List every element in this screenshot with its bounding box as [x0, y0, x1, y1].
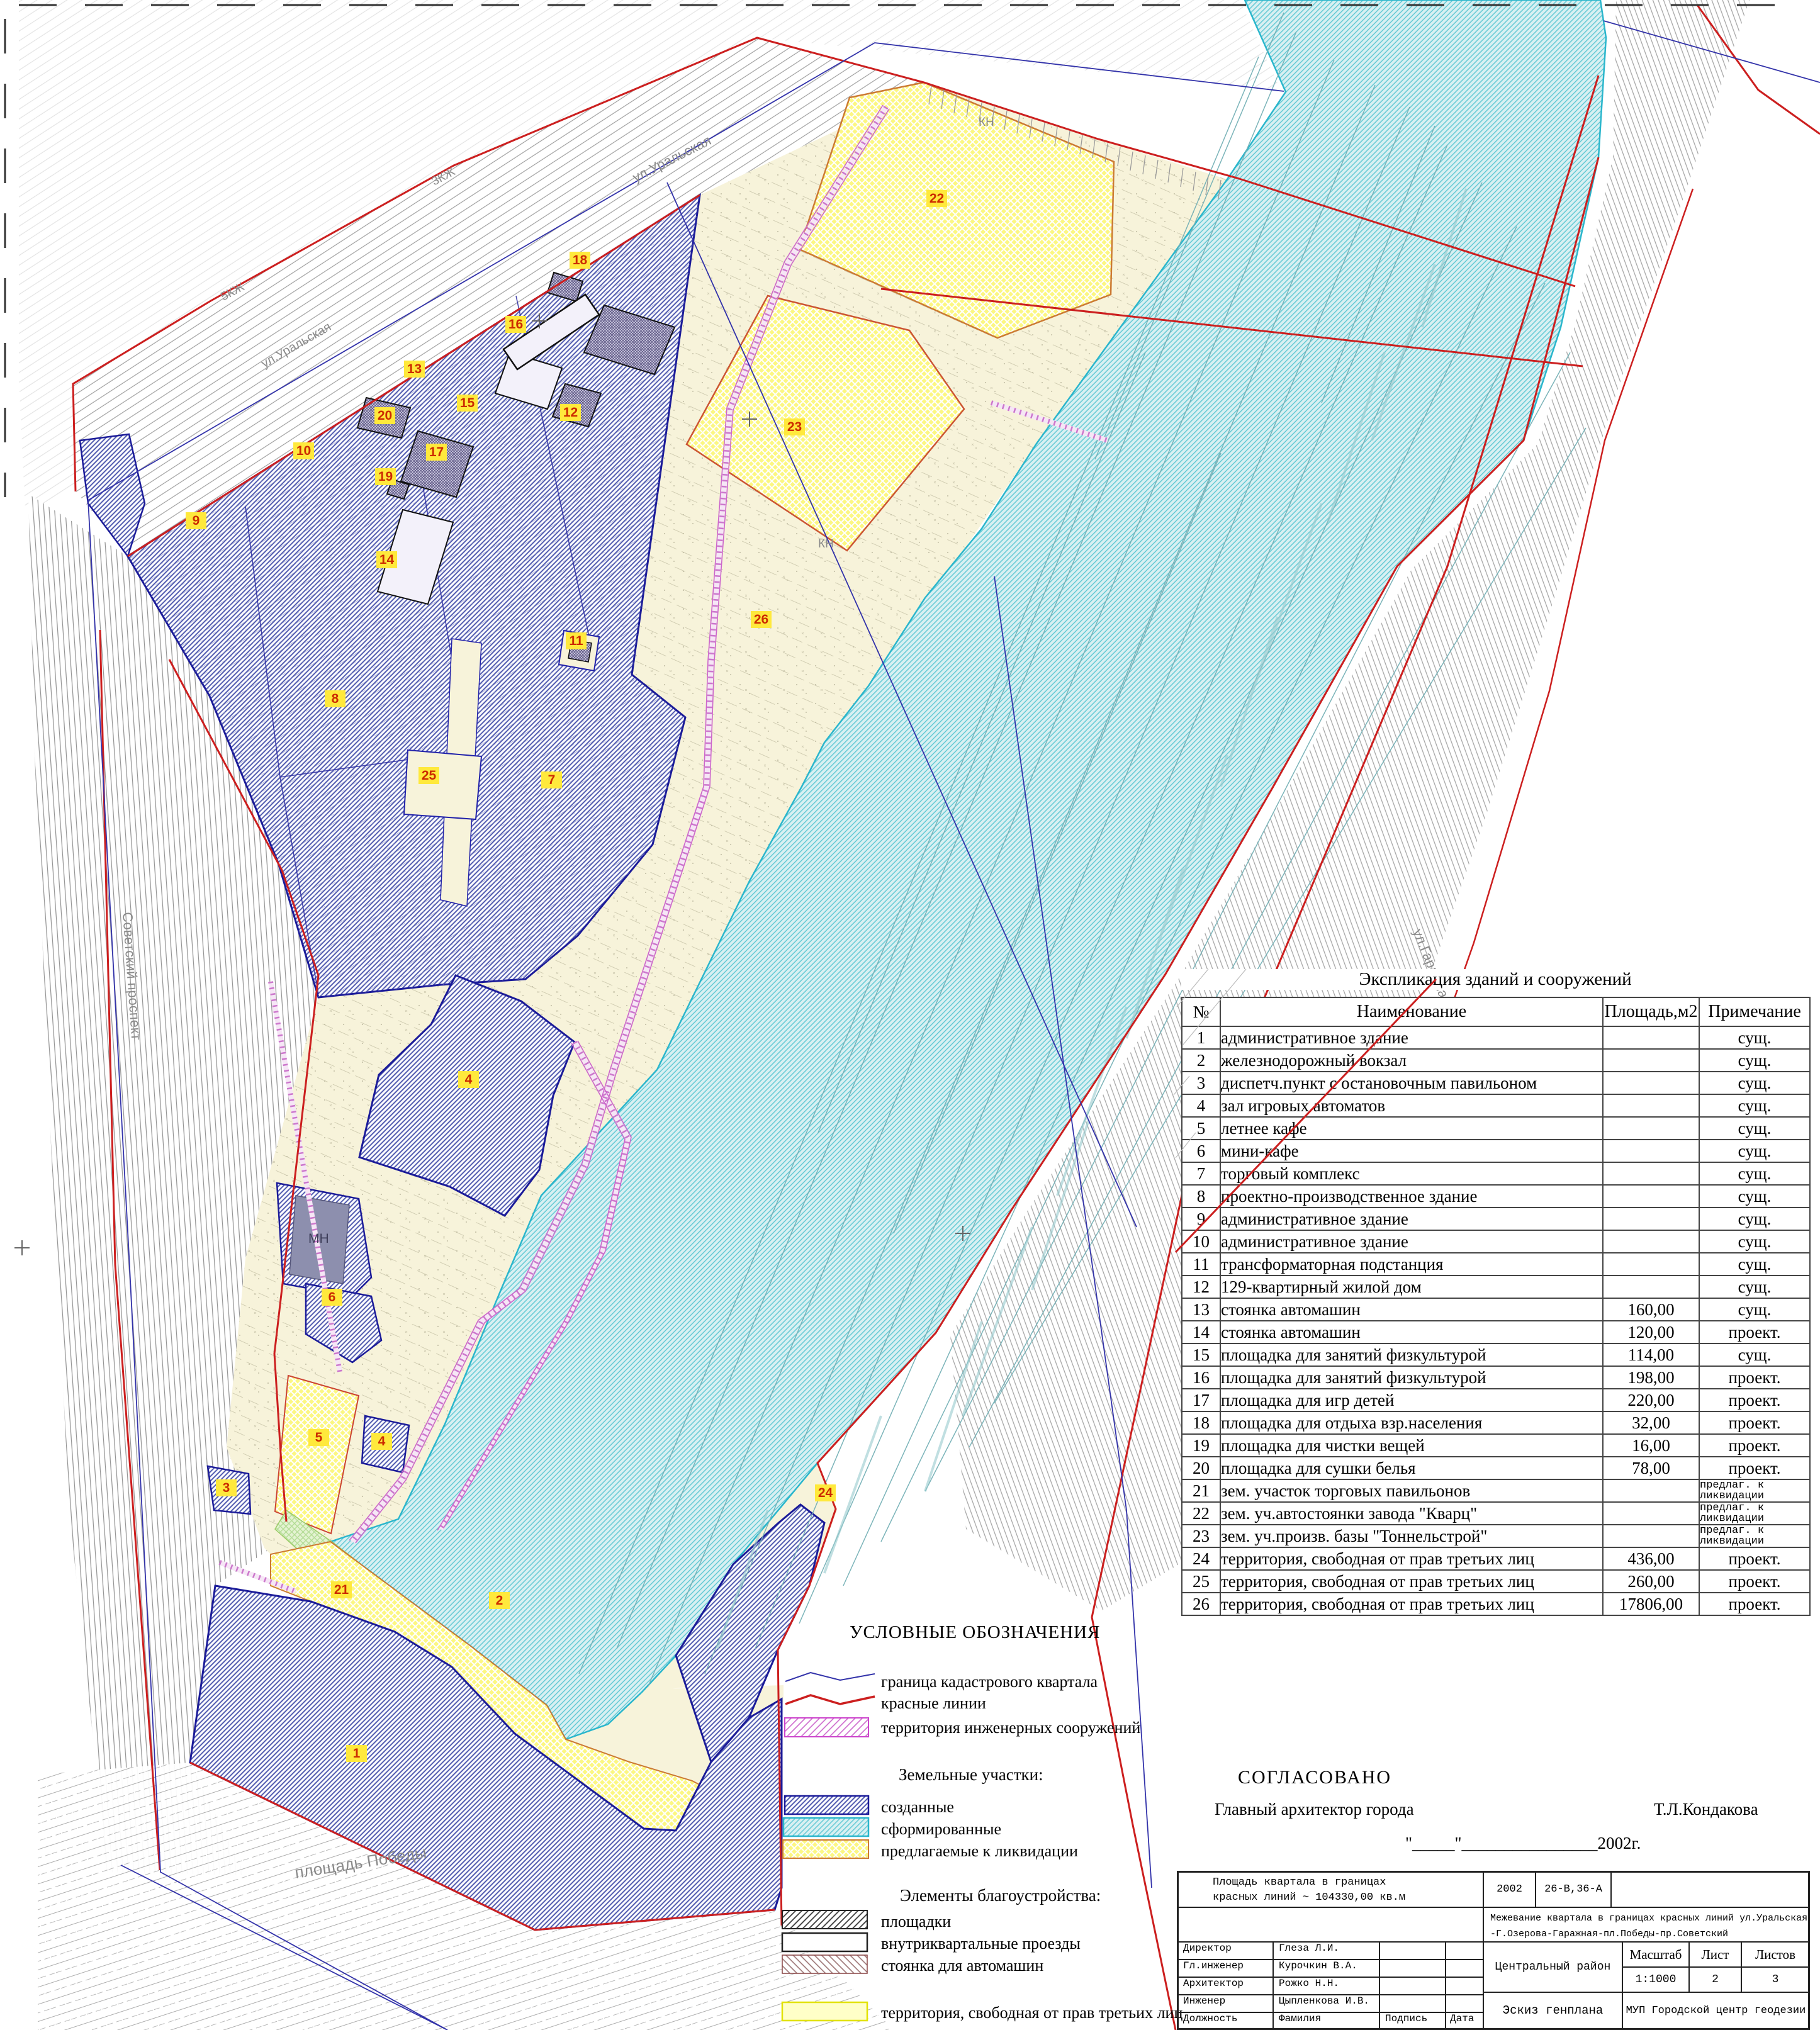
svg-text:КН: КН	[979, 116, 994, 129]
svg-text:МН: МН	[308, 1231, 329, 1246]
svg-text:КН: КН	[818, 537, 834, 551]
